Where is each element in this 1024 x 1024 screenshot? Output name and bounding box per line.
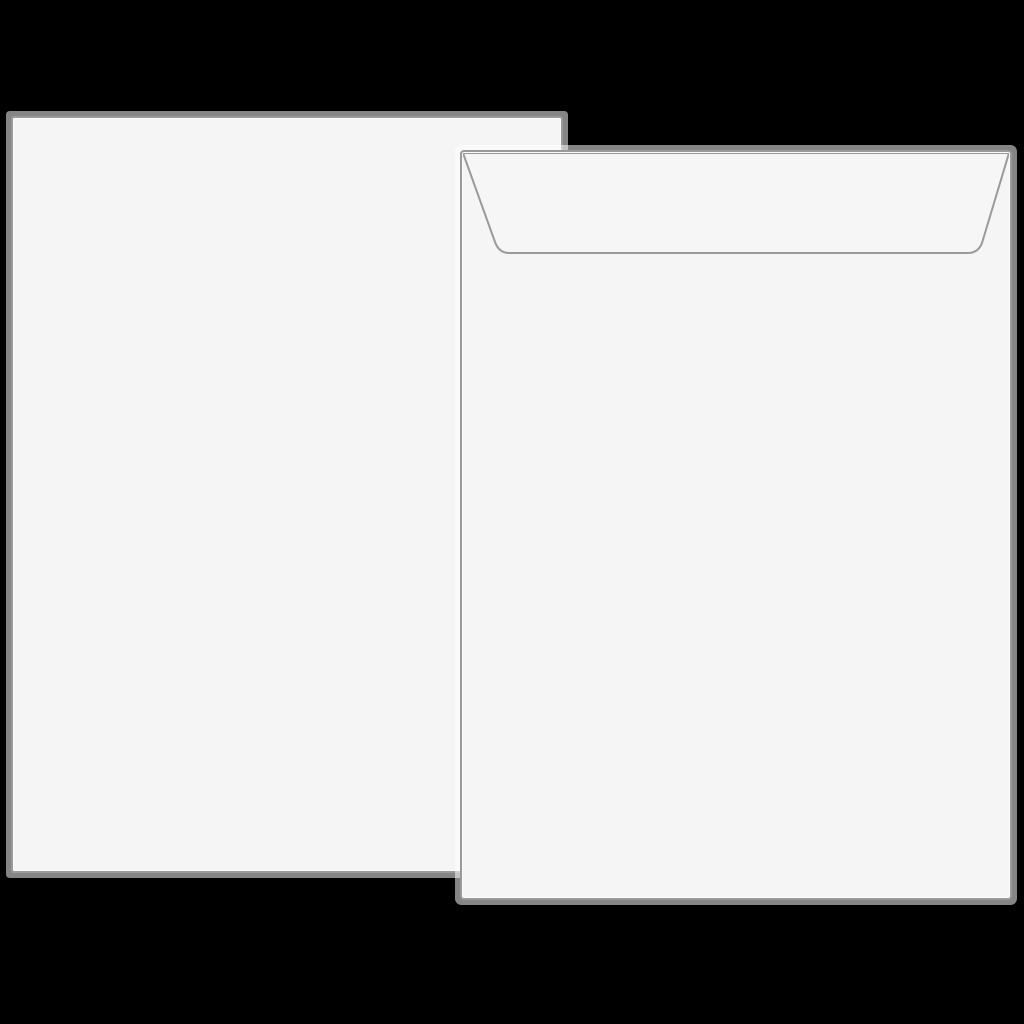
envelope-flap-seal-line — [463, 153, 1009, 253]
envelope — [462, 152, 1010, 898]
envelope-flap-outline — [463, 153, 1009, 897]
scene-background — [0, 0, 1024, 1024]
